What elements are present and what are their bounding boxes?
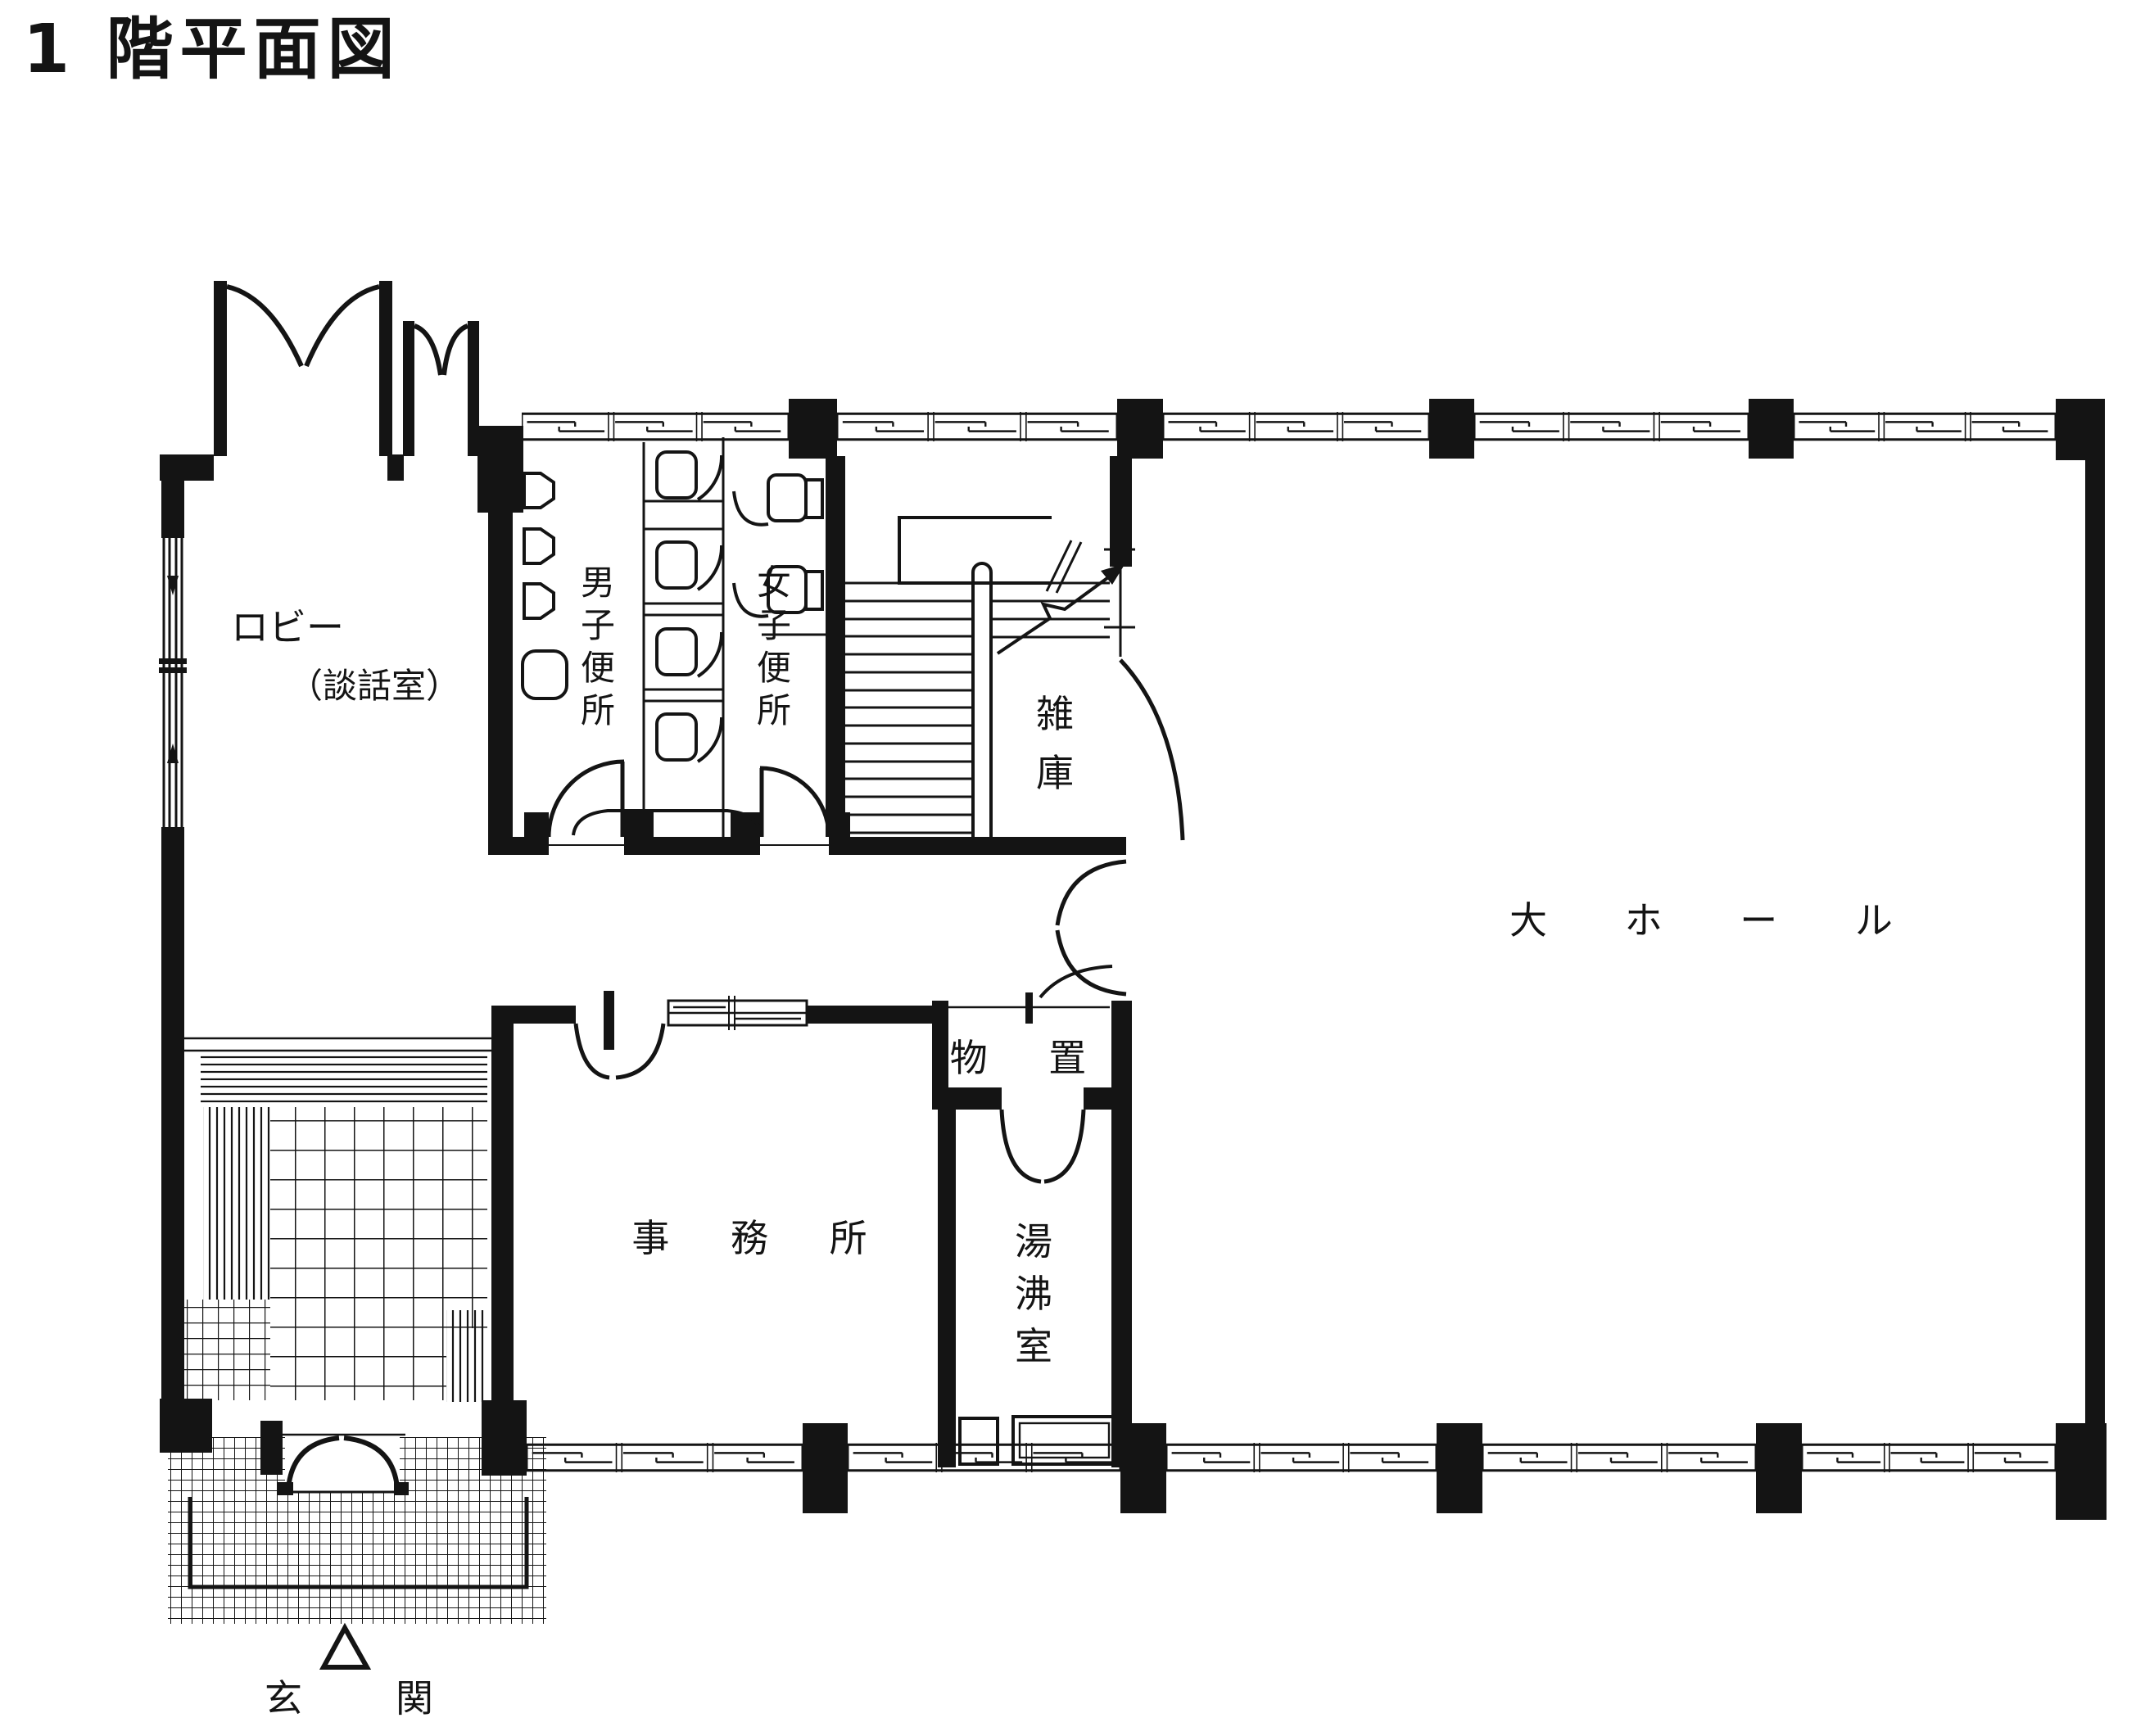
svg-text:雑: 雑 (1036, 692, 1074, 736)
svg-text:子: 子 (757, 605, 791, 645)
entrance-doors-south (277, 1435, 409, 1495)
room-office: 事 務 所 (491, 1024, 892, 1402)
entrance-marker: 玄 関 (265, 1628, 433, 1720)
lobby-east-wall (488, 511, 513, 839)
entrance-hall-steps (184, 1038, 491, 1051)
large-hall-label: 大 ホ ー ル (1509, 898, 1926, 943)
toilet-block: 男 子 便 所 女 子 便 所 (488, 437, 1126, 855)
lobby-label: ロビー (231, 605, 344, 649)
urinal-fixtures (523, 473, 567, 698)
main-entrance-doors (160, 281, 523, 513)
svg-text:子: 子 (581, 605, 615, 645)
entrance-hall-floor-hatch (179, 1054, 487, 1402)
entrance-label-right: 関 (396, 1676, 433, 1720)
svg-text:女: 女 (757, 563, 791, 603)
svg-text:沸: 沸 (1015, 1272, 1052, 1316)
lobby-west-window (159, 538, 187, 827)
svg-text:所: 所 (581, 690, 615, 730)
room-storeroom: 物 置 (932, 966, 1126, 1182)
svg-text:室: 室 (1015, 1324, 1052, 1368)
entrance-label-left: 玄 (265, 1676, 302, 1720)
svg-text:事 務 所: 事 務 所 (631, 1216, 891, 1260)
toilet-stalls-center (644, 437, 723, 837)
svg-text:男: 男 (581, 563, 615, 603)
hall-west-double-door (1057, 861, 1126, 994)
north-window-wall (522, 399, 2105, 460)
svg-text:所: 所 (757, 690, 791, 730)
svg-text:便: 便 (581, 648, 615, 688)
floor-plan-drawing: 1 階平面図 (0, 0, 2136, 1736)
staircase (845, 518, 1125, 850)
lobby-sublabel: （談話室） (288, 666, 460, 706)
svg-text:湯: 湯 (1015, 1219, 1052, 1264)
womens-toilet-label: 女 子 便 所 (757, 563, 791, 730)
svg-text:庫: 庫 (1036, 751, 1074, 795)
room-misc-storage: 雑 庫 (1036, 456, 1183, 840)
service-east-wall (1111, 1001, 1132, 1467)
mens-toilet-label: 男 子 便 所 (581, 563, 615, 730)
room-lobby: ロビー （談話室） (231, 605, 460, 706)
room-hot-water: 湯 沸 室 (938, 1108, 1116, 1467)
svg-text:物 置: 物 置 (950, 1036, 1111, 1080)
svg-text:便: 便 (757, 648, 791, 688)
page-title: 1 階平面図 (23, 11, 401, 88)
floor-plan-page: 1 階平面図 (0, 0, 2136, 1736)
corridor-south-wall (491, 991, 948, 1078)
east-wall (2085, 442, 2105, 1444)
office-window (668, 996, 807, 1030)
